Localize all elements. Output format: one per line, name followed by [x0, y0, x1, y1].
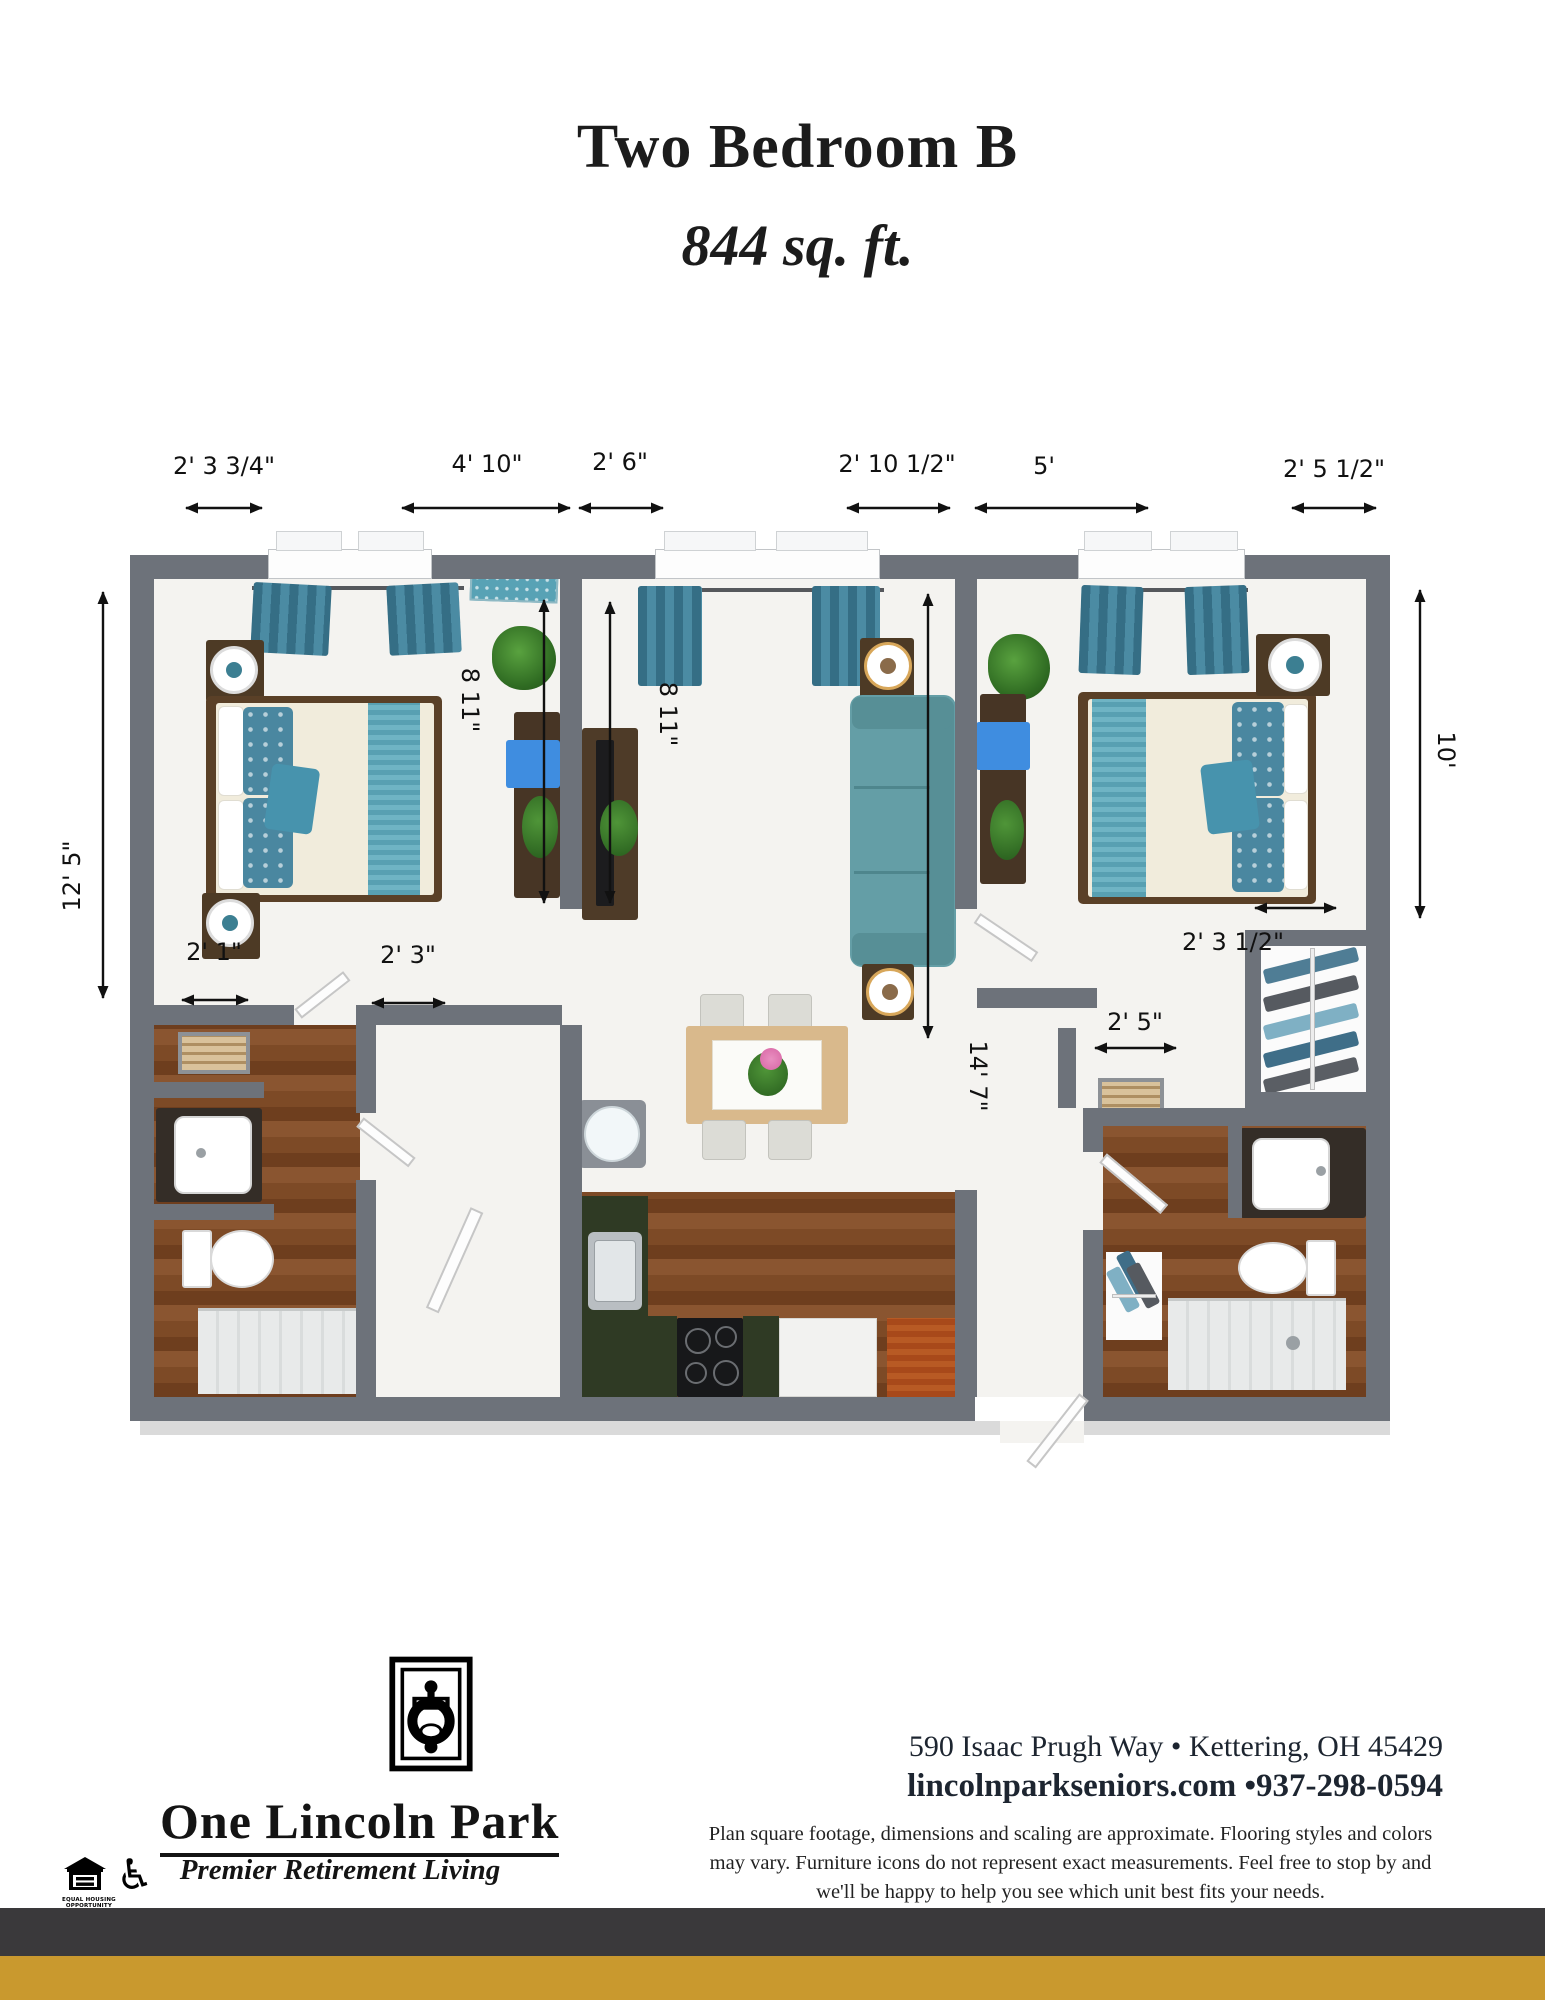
dimension-arrows: [0, 0, 1545, 1545]
flyer-page: Two Bedroom B 844 sq. ft.: [0, 0, 1545, 2000]
address: 590 Isaac Prugh Way • Kettering, OH 4542…: [698, 1730, 1443, 1764]
dim-top-1: 2' 3 3/4": [124, 452, 324, 480]
disclaimer: Plan square footage, dimensions and scal…: [698, 1820, 1443, 1907]
footer-bar-dark: [0, 1908, 1545, 1956]
dim-living-length: 14' 7": [964, 1011, 992, 1141]
door-knocker-logo: [388, 1655, 474, 1773]
dim-living-depth: 8 11": [654, 649, 682, 779]
dim-left: 12' 5": [58, 811, 86, 941]
dim-closet: 2' 3 1/2": [1133, 928, 1333, 956]
contact: lincolnparkseniors.com •937-298-0594: [698, 1768, 1443, 1805]
dim-top-6: 2' 5 1/2": [1234, 455, 1434, 483]
dim-top-3: 2' 6": [520, 448, 720, 476]
dim-top-5: 5': [944, 452, 1144, 480]
footer-bar-gold: [0, 1956, 1545, 2000]
dim-right: 10': [1432, 685, 1460, 815]
floor-plan: 2' 3 3/4" 4' 10" 2' 6" 2' 10 1/2" 5' 2' …: [0, 0, 1545, 1545]
equal-housing-icon: EQUAL HOUSINGOPPORTUNITY: [62, 1856, 116, 1910]
dim-bath1-door: 2' 1": [114, 938, 314, 966]
dim-bath2-door: 2' 5": [1035, 1008, 1235, 1036]
wheelchair-icon: ♿: [116, 1850, 154, 1899]
dim-bed1-depth: 8 11": [456, 635, 484, 765]
brand-name: One Lincoln Park: [160, 1793, 559, 1857]
brand-block: One Lincoln Park: [160, 1792, 520, 1850]
dim-hall-door: 2' 3": [308, 941, 508, 969]
brand-tagline: Premier Retirement Living: [160, 1854, 520, 1887]
